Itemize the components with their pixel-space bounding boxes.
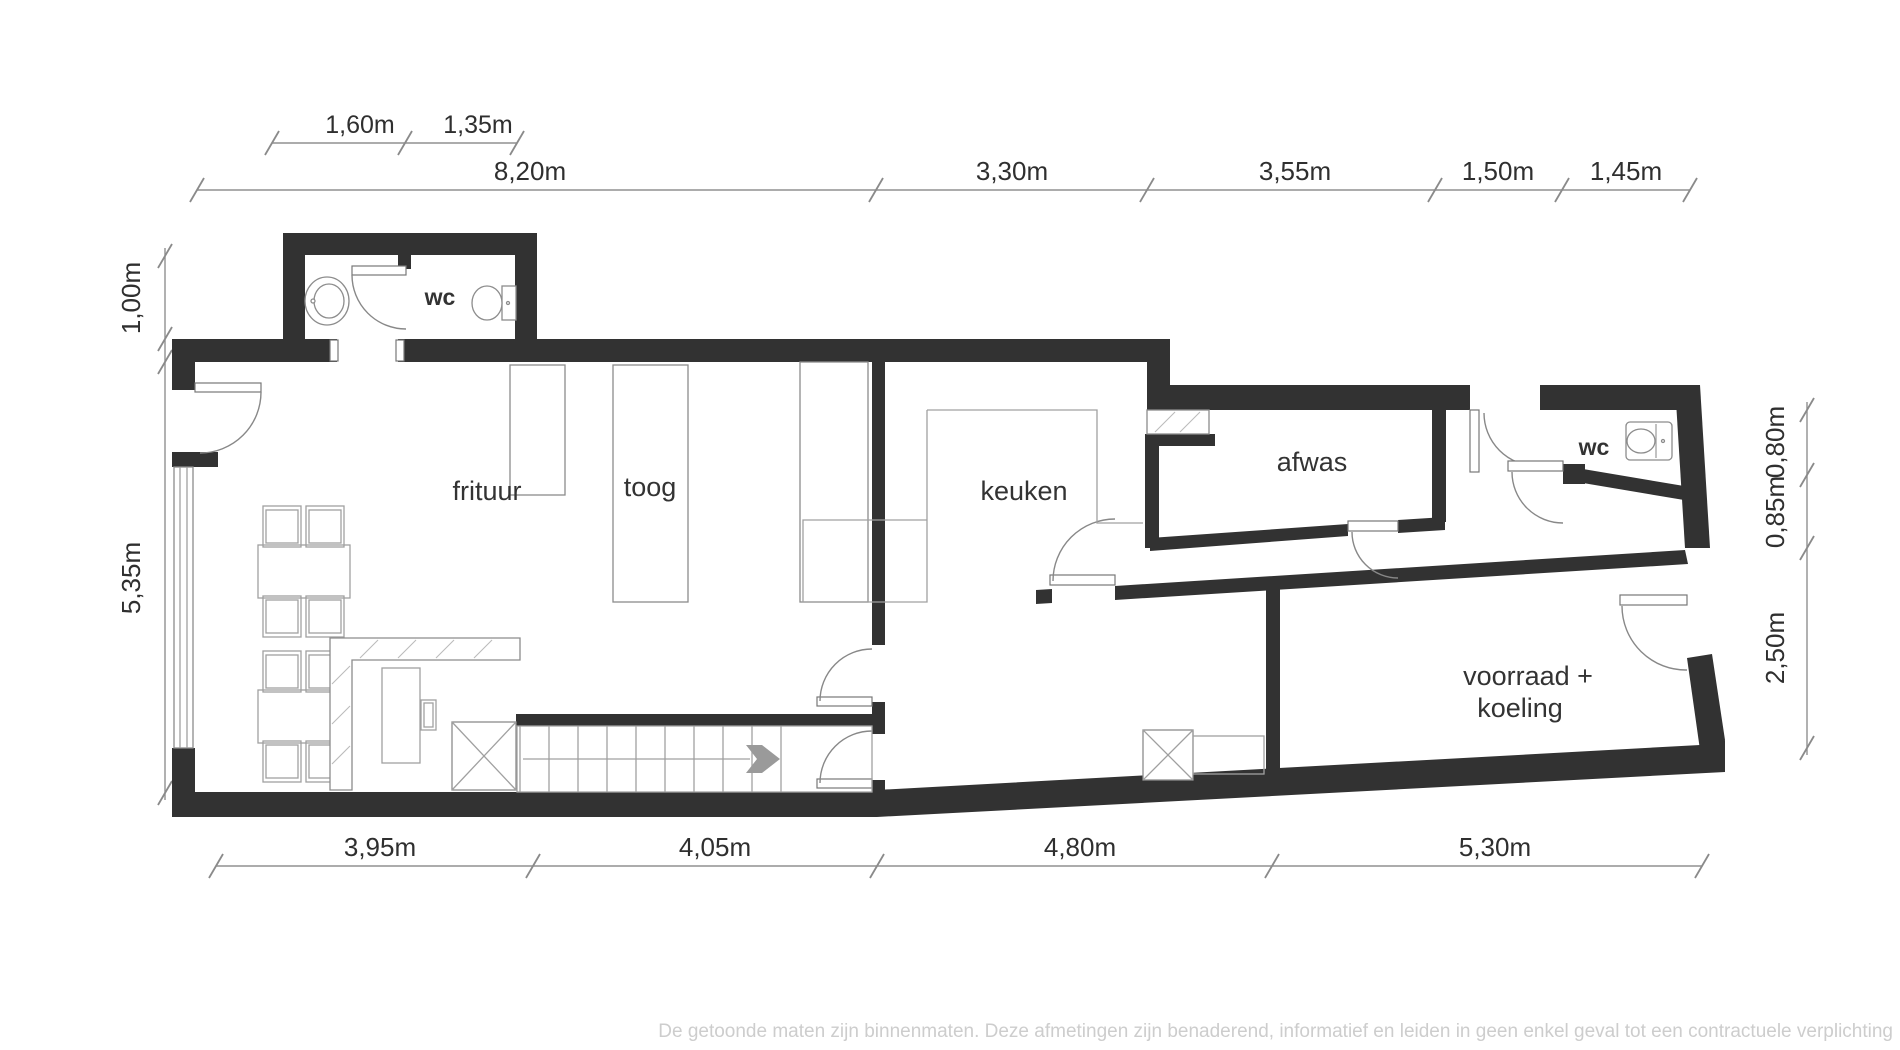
- dim-right-1: 0,80m: [1760, 406, 1790, 478]
- shaft-box-left: [452, 722, 516, 790]
- room-label-keuken: keuken: [980, 476, 1067, 506]
- stairs-direction-arrow-icon: [746, 745, 780, 773]
- dim-bottom-4: 5,30m: [1459, 832, 1531, 862]
- floor-plan-svg: 1,60m 1,35m 8,20m 3,30m 3,55m 1,50m 1,45…: [0, 0, 1900, 1050]
- windows: [174, 340, 1209, 748]
- room-label-wc-top: wc: [424, 284, 456, 310]
- dim-top-3: 3,55m: [1259, 156, 1331, 186]
- room-label-voorraad-line1: voorraad +: [1463, 661, 1593, 691]
- room-label-wc-right: wc: [1578, 434, 1610, 460]
- dim-left-2: 5,35m: [116, 542, 146, 614]
- sink-icon: [305, 277, 349, 325]
- dim-top-4: 1,50m: [1462, 156, 1534, 186]
- room-label-afwas: afwas: [1277, 447, 1348, 477]
- toilet-icon-top: [472, 286, 516, 320]
- dim-left-1: 1,00m: [116, 262, 146, 334]
- toilet-icon-right: [1626, 422, 1672, 460]
- dim-top-5: 1,45m: [1590, 156, 1662, 186]
- room-label-voorraad-line2: koeling: [1477, 693, 1563, 723]
- room-label-toog: toog: [624, 472, 677, 502]
- room-label-frituur: frituur: [452, 476, 521, 506]
- dim-top-small-2: 1,35m: [443, 111, 512, 139]
- toog-counter-3: [800, 362, 868, 602]
- footer-disclaimer: De getoonde maten zijn binnenmaten. Deze…: [658, 1021, 1893, 1042]
- dim-top-1: 8,20m: [494, 156, 566, 186]
- dim-right-3: 2,50m: [1760, 612, 1790, 684]
- dim-bottom-3: 4,80m: [1044, 832, 1116, 862]
- table-group-1: [258, 506, 350, 637]
- floor-plan-page: 1,60m 1,35m 8,20m 3,30m 3,55m 1,50m 1,45…: [0, 0, 1900, 1050]
- desk-group: [382, 668, 436, 763]
- dim-bottom-1: 3,95m: [344, 832, 416, 862]
- dim-right-2: 0,85m: [1760, 476, 1790, 548]
- dim-top-2: 3,30m: [976, 156, 1048, 186]
- dim-top-small-1: 1,60m: [325, 111, 394, 139]
- dim-bottom-2: 4,05m: [679, 832, 751, 862]
- walls: [172, 233, 1725, 817]
